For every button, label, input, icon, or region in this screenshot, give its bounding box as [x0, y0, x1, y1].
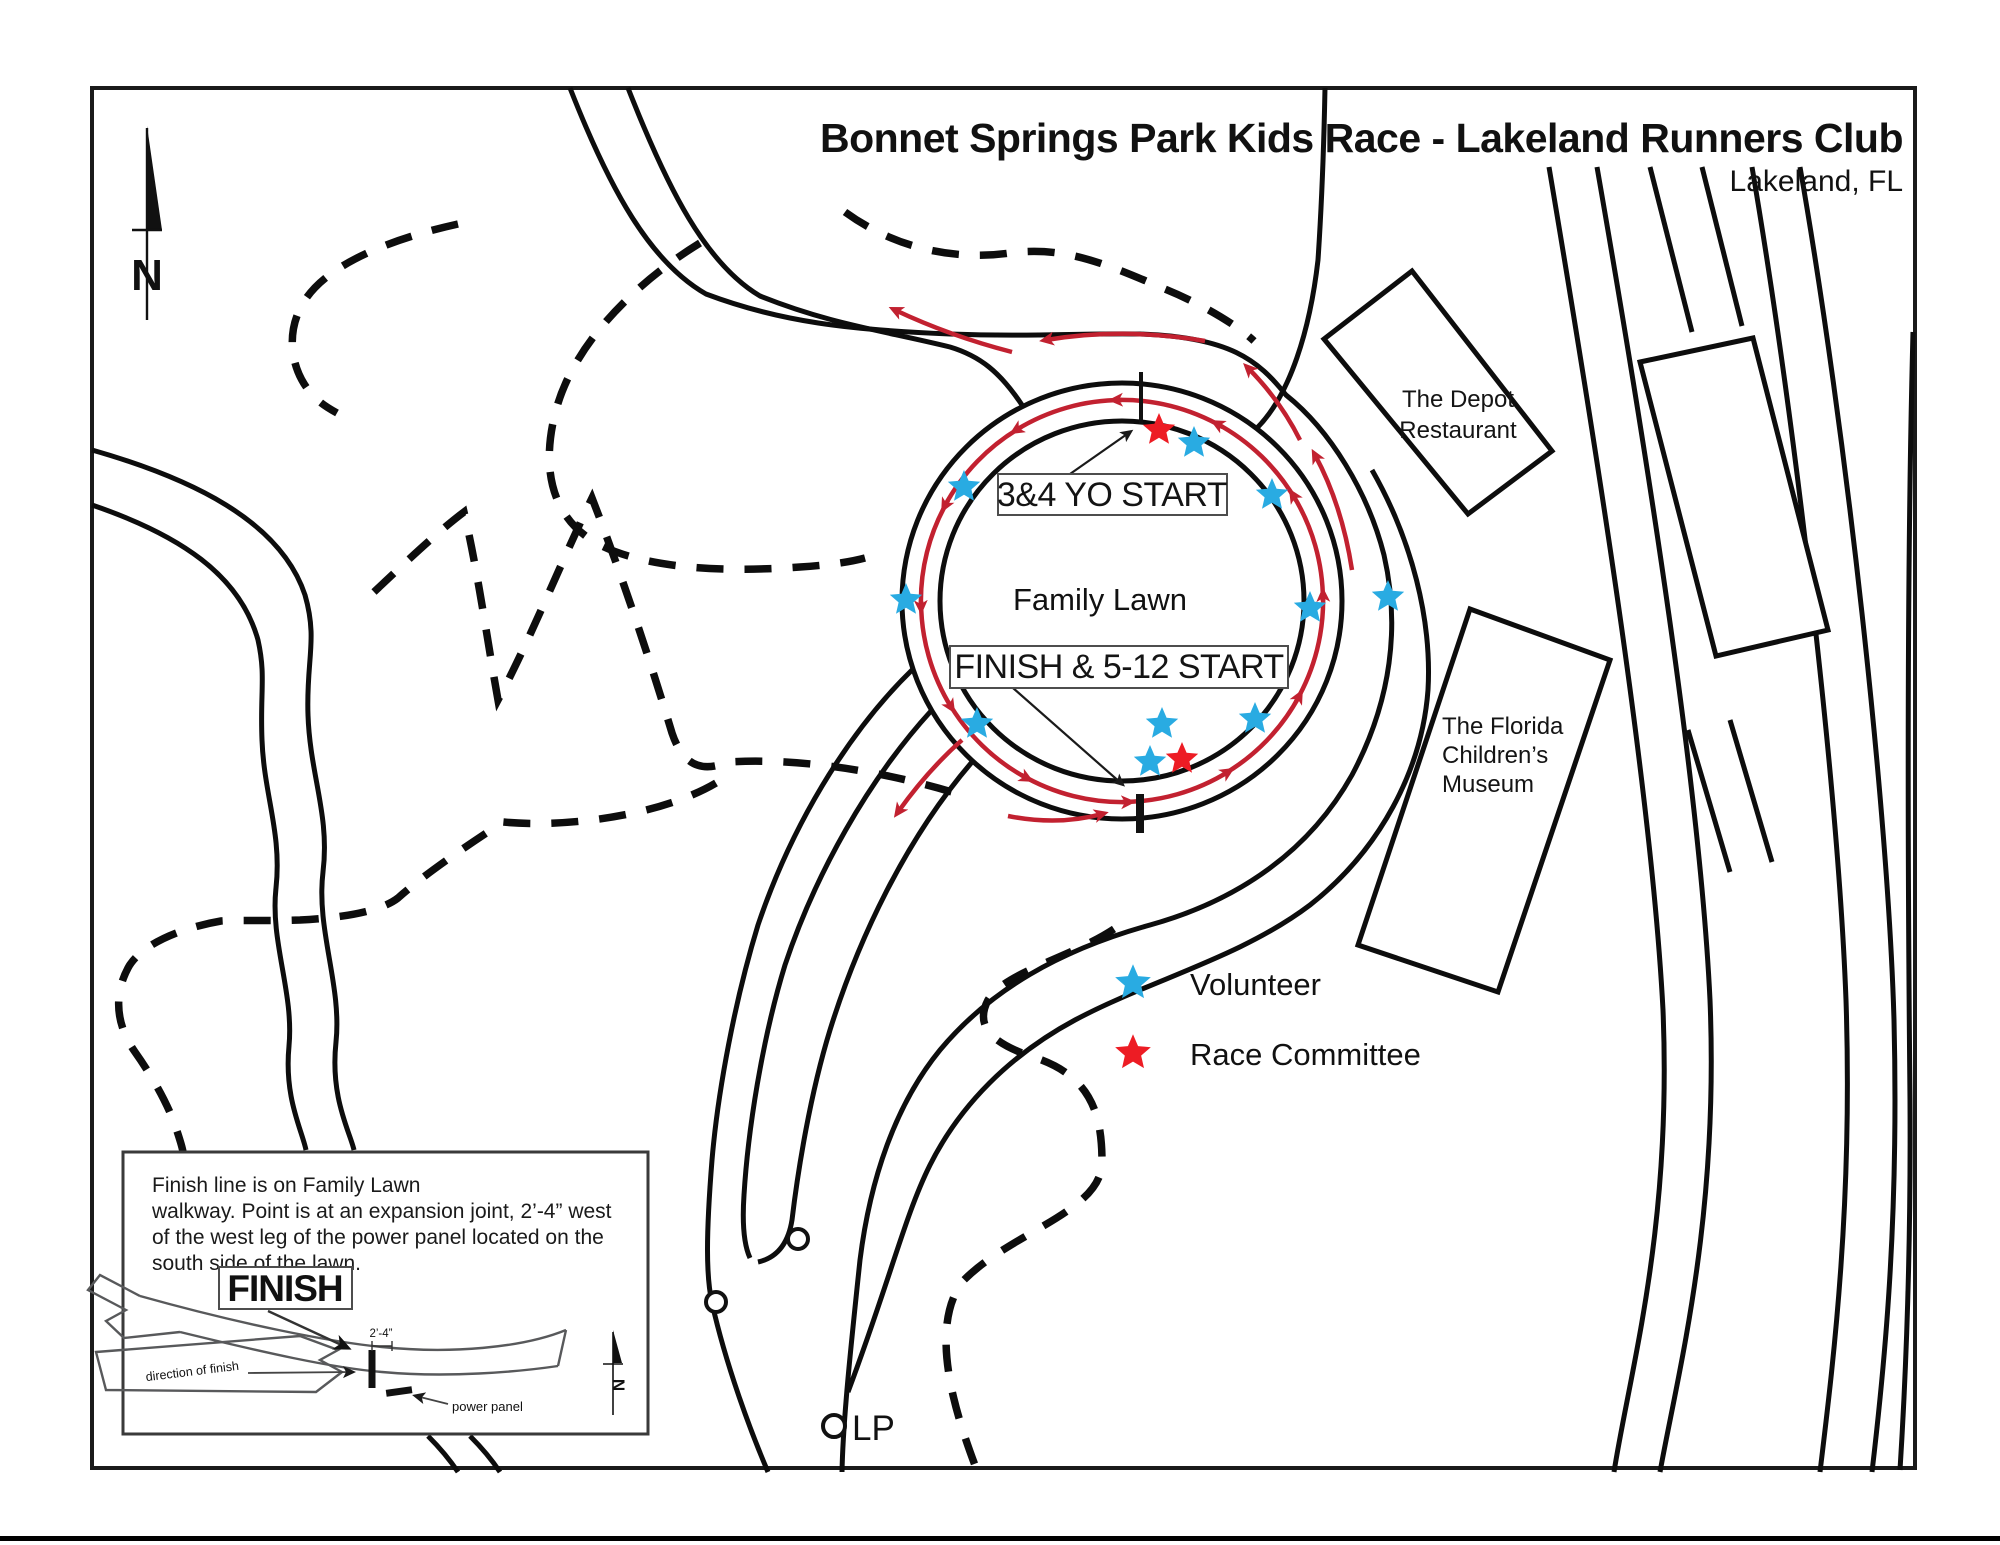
inset-dimension-label: 2’-4”	[369, 1328, 392, 1340]
map-title: Bonnet Springs Park Kids Race - Lakeland…	[820, 115, 1903, 161]
north-label: N	[131, 251, 163, 300]
race-map-page: The Depot Restaurant The Florida Childre…	[0, 0, 2000, 1545]
inset-finish-label: FINISH	[227, 1268, 342, 1309]
legend-volunteer-label: Volunteer	[1190, 967, 1321, 1002]
inset-finish-tick	[369, 1350, 376, 1388]
start-3-4-label: 3&4 YO START	[997, 476, 1227, 514]
museum-label-1: The Florida	[1442, 713, 1564, 740]
museum-label-2: Children’s	[1442, 742, 1548, 769]
depot-label-1: The Depot	[1402, 386, 1514, 413]
inset-note-3: of the west leg of the power panel locat…	[152, 1226, 604, 1249]
park-map: The Depot Restaurant The Florida Childre…	[0, 0, 2000, 1545]
legend-committee-label: Race Committee	[1190, 1037, 1421, 1072]
inset-north-label: N	[609, 1379, 628, 1391]
light-pole-label: LP	[852, 1409, 895, 1448]
map-subtitle: Lakeland, FL	[1730, 165, 1903, 198]
inset-note-2: walkway. Point is at an expansion joint,…	[151, 1200, 612, 1223]
finish-5-12-label: FINISH & 5-12 START	[954, 648, 1283, 686]
page-bottom-rule	[0, 1536, 2000, 1541]
power-panel-label: power panel	[452, 1399, 523, 1414]
museum-label-3: Museum	[1442, 771, 1534, 798]
inset-note-1: Finish line is on Family Lawn	[152, 1174, 420, 1197]
finish-inset: Finish line is on Family Lawn walkway. P…	[88, 1152, 648, 1434]
family-lawn-label: Family Lawn	[1013, 582, 1187, 617]
depot-label-2: Restaurant	[1399, 417, 1517, 444]
